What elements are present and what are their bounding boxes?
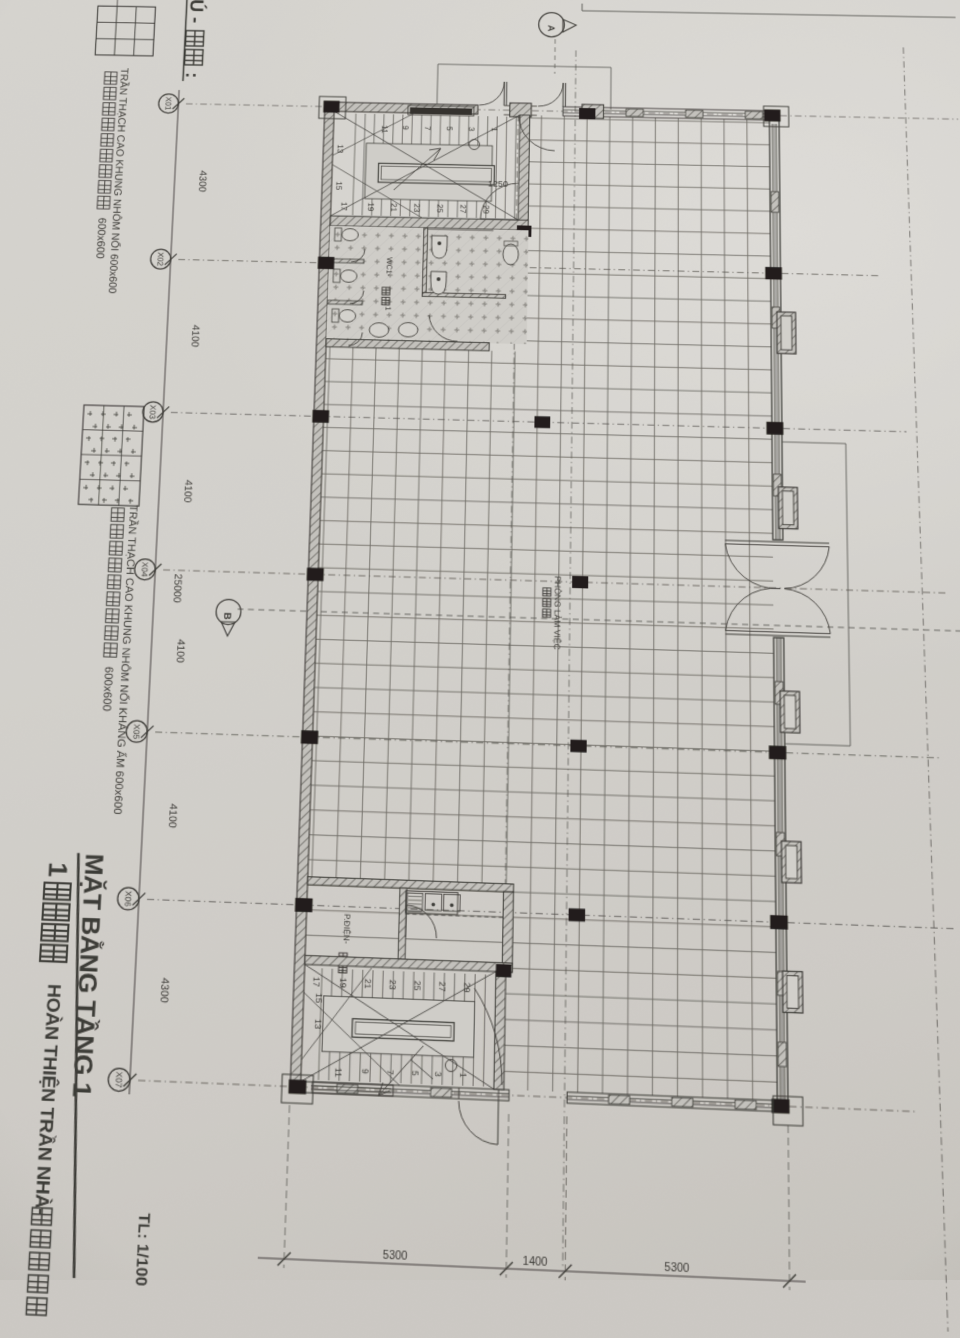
svg-text:7: 7 (423, 126, 433, 131)
svg-text:1: 1 (42, 862, 72, 878)
svg-text:5300: 5300 (664, 1261, 689, 1276)
svg-text:X03: X03 (148, 405, 158, 420)
svg-text:P.ĐIỆN-: P.ĐIỆN- (341, 913, 352, 944)
svg-text:3: 3 (433, 1071, 443, 1077)
svg-text:1250: 1250 (488, 178, 509, 189)
svg-text:5: 5 (445, 126, 455, 131)
svg-text:19: 19 (338, 978, 349, 989)
svg-text:4100: 4100 (188, 325, 201, 348)
svg-text:4300: 4300 (157, 978, 171, 1004)
svg-text:5300: 5300 (383, 1249, 408, 1264)
svg-text:17: 17 (339, 202, 349, 211)
svg-text:X01: X01 (163, 97, 173, 111)
svg-text:X02: X02 (155, 252, 165, 266)
svg-text:HOÀN THIỆN TRẦN NHÀ-: HOÀN THIỆN TRẦN NHÀ- (31, 984, 66, 1216)
svg-text:19: 19 (366, 202, 376, 211)
svg-text:11: 11 (333, 1067, 344, 1077)
svg-text:27: 27 (458, 204, 468, 213)
svg-text:11: 11 (380, 125, 390, 133)
svg-text::: : (182, 72, 203, 78)
svg-text:15: 15 (313, 993, 324, 1004)
svg-text:PHÒNG LÀM VIỆC: PHÒNG LÀM VIỆC (552, 576, 563, 651)
svg-text:1400: 1400 (523, 1255, 548, 1270)
svg-text:4300: 4300 (196, 170, 209, 192)
svg-text:600x600: 600x600 (100, 666, 114, 711)
svg-text:A: A (546, 25, 557, 32)
svg-text:13: 13 (335, 144, 345, 153)
svg-text:9: 9 (401, 125, 411, 130)
svg-text:4100: 4100 (173, 639, 186, 663)
svg-text:X05: X05 (131, 724, 142, 740)
svg-text:25000: 25000 (170, 574, 183, 603)
svg-text:13: 13 (313, 1019, 324, 1030)
svg-text:15: 15 (334, 181, 344, 190)
svg-text:4100: 4100 (166, 803, 179, 828)
svg-text:25: 25 (435, 204, 445, 213)
svg-text:1: 1 (383, 306, 393, 310)
svg-text:4100: 4100 (181, 480, 194, 503)
svg-text:1: 1 (458, 1072, 468, 1078)
svg-text:23: 23 (387, 979, 397, 990)
svg-text:21: 21 (362, 978, 372, 989)
svg-text:5: 5 (410, 1070, 420, 1076)
svg-text:X06: X06 (123, 891, 134, 907)
svg-text:9: 9 (360, 1068, 370, 1074)
svg-text:X07: X07 (113, 1071, 124, 1088)
svg-text:600x600: 600x600 (93, 217, 107, 259)
svg-text:27: 27 (437, 981, 447, 992)
svg-text:CHÚ -: CHÚ - (186, 0, 210, 23)
svg-text:21: 21 (389, 203, 399, 212)
svg-text:B: B (222, 612, 233, 620)
svg-text:1: 1 (490, 127, 500, 132)
svg-text:MẶT BẰNG TẦNG 1: MẶT BẰNG TẦNG 1 (67, 853, 109, 1097)
svg-text:17: 17 (311, 977, 322, 988)
svg-text:7: 7 (385, 1069, 395, 1075)
svg-text:25: 25 (412, 980, 422, 991)
svg-text:X04: X04 (139, 562, 150, 578)
svg-text:23: 23 (412, 203, 422, 212)
svg-text:3: 3 (467, 127, 477, 132)
svg-text:TL: 1/100: TL: 1/100 (132, 1213, 153, 1287)
svg-text:29: 29 (462, 982, 472, 993)
svg-text:WC1-: WC1- (384, 257, 394, 277)
